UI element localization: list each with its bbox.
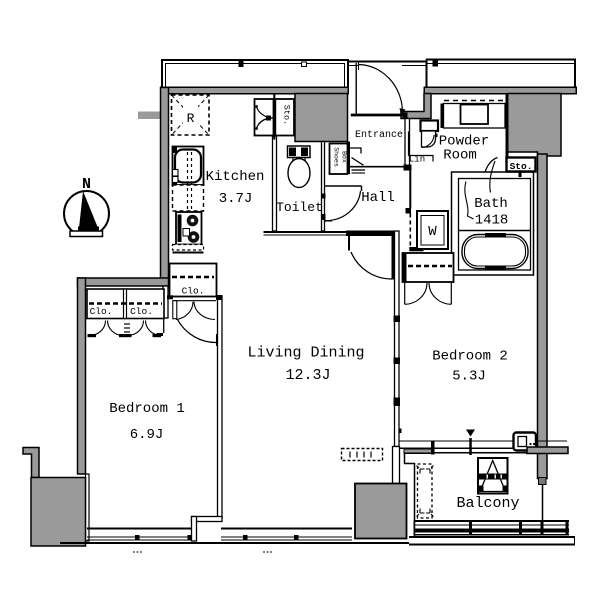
svg-text:Sto.: Sto. [510, 161, 533, 172]
svg-text:Box: Box [341, 151, 348, 163]
svg-text:N: N [82, 176, 91, 193]
svg-text:Toilet: Toilet [276, 200, 323, 215]
svg-text:R: R [187, 111, 195, 126]
svg-text:Balcony: Balcony [456, 495, 519, 512]
svg-text:Clo.: Clo. [90, 306, 113, 317]
svg-text:Room: Room [443, 148, 477, 164]
svg-text:Bedroom 2: Bedroom 2 [432, 349, 508, 365]
svg-text:Entrance: Entrance [355, 130, 403, 141]
svg-text:Living Dining: Living Dining [247, 345, 364, 362]
svg-text:Clo.: Clo. [182, 286, 205, 297]
svg-text:Bedroom 1: Bedroom 1 [109, 401, 185, 417]
svg-text:Hall: Hall [361, 190, 395, 206]
svg-text:3.7J: 3.7J [219, 191, 253, 207]
svg-text:Bath: Bath [474, 196, 508, 212]
svg-text:6.9J: 6.9J [130, 427, 164, 443]
svg-text:Kitchen: Kitchen [206, 169, 265, 185]
svg-text:Clo.: Clo. [130, 306, 153, 317]
svg-text:1418: 1418 [475, 213, 509, 229]
svg-text:5.3J: 5.3J [452, 369, 486, 385]
svg-text:Shoes: Shoes [333, 147, 340, 167]
svg-text:12.3J: 12.3J [285, 367, 330, 384]
svg-text:W: W [428, 224, 437, 240]
svg-text:Sto.: Sto. [282, 105, 292, 125]
svg-text:Lin: Lin [409, 155, 425, 165]
